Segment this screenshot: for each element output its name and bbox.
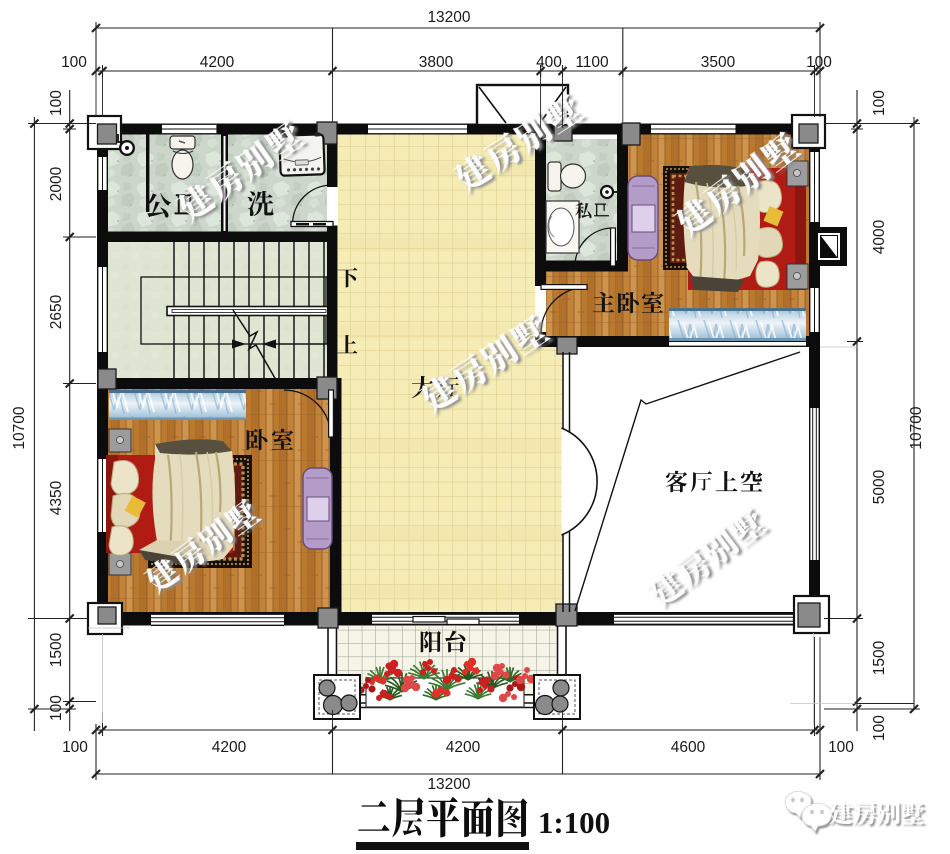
svg-text:13200: 13200 — [427, 9, 470, 26]
svg-text:1100: 1100 — [575, 54, 609, 71]
svg-text:400: 400 — [536, 54, 562, 71]
svg-text:5000: 5000 — [871, 469, 888, 504]
svg-text:1500: 1500 — [871, 640, 888, 675]
svg-text:100: 100 — [61, 54, 87, 71]
svg-text:3500: 3500 — [701, 54, 736, 71]
svg-text:100: 100 — [828, 739, 854, 756]
svg-text:4000: 4000 — [871, 219, 888, 254]
svg-text:3800: 3800 — [419, 54, 454, 71]
svg-text:10700: 10700 — [908, 406, 925, 449]
svg-text:1500: 1500 — [48, 632, 65, 667]
svg-text:4350: 4350 — [48, 480, 65, 515]
svg-text:100: 100 — [871, 715, 888, 741]
svg-text:100: 100 — [48, 695, 65, 721]
svg-text:10700: 10700 — [11, 406, 28, 449]
svg-text:13200: 13200 — [427, 776, 470, 793]
svg-text:100: 100 — [48, 90, 65, 116]
svg-text:2650: 2650 — [48, 294, 65, 329]
svg-text:100: 100 — [62, 739, 88, 756]
svg-text:4200: 4200 — [446, 739, 481, 756]
svg-text:100: 100 — [806, 54, 832, 71]
svg-text:4200: 4200 — [200, 54, 235, 71]
svg-text:2000: 2000 — [48, 166, 65, 201]
svg-text:1:100: 1:100 — [538, 805, 610, 840]
svg-text:4200: 4200 — [212, 739, 247, 756]
svg-text:100: 100 — [871, 90, 888, 116]
svg-text:4600: 4600 — [671, 739, 706, 756]
